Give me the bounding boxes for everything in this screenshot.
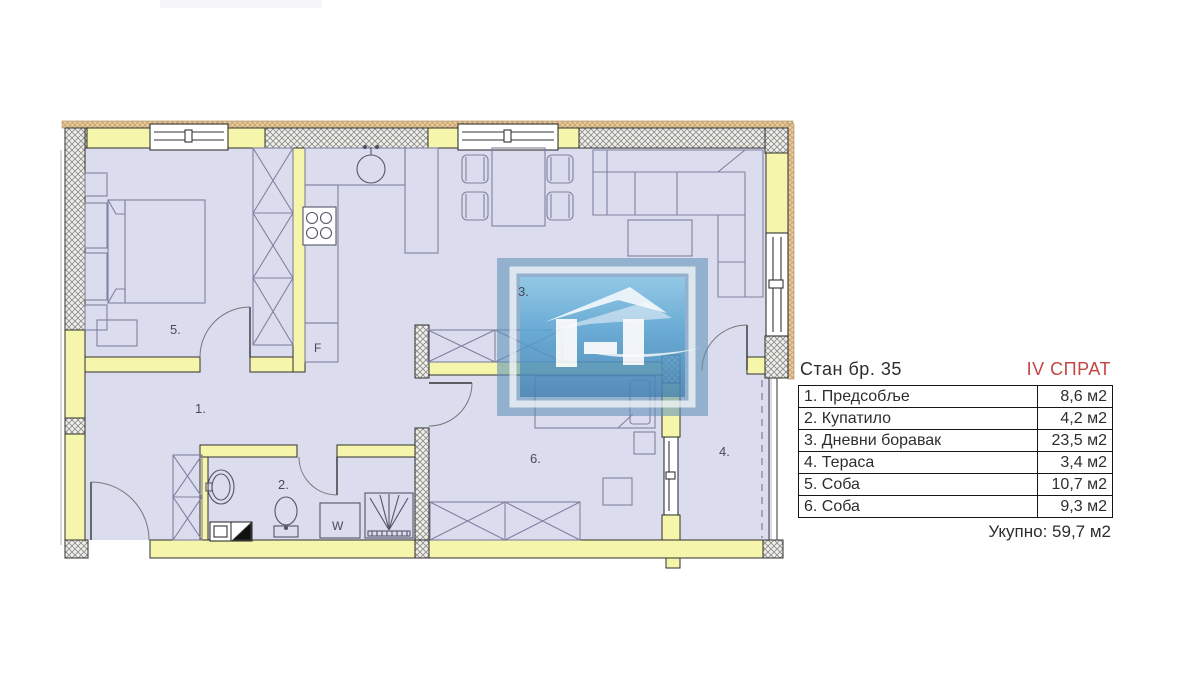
- areas-table: 1. Предсобље 8,6 м2 2. Купатило 4,2 м2 3…: [798, 385, 1113, 518]
- room-name: 6. Соба: [799, 496, 1038, 518]
- room-area: 3,4 м2: [1038, 452, 1113, 474]
- panel-header: Стан бр. 35 IV СПРАТ: [800, 359, 1111, 380]
- page: { "plan": { "labels": { "hall": "1.", "b…: [0, 0, 1200, 675]
- table-row: 3. Дневни боравак 23,5 м2: [799, 430, 1113, 452]
- room-name: 4. Тераса: [799, 452, 1038, 474]
- room-area: 23,5 м2: [1038, 430, 1113, 452]
- room-area: 4,2 м2: [1038, 408, 1113, 430]
- room-area: 8,6 м2: [1038, 386, 1113, 408]
- window-top-left: [150, 124, 228, 150]
- room-name: 2. Купатило: [799, 408, 1038, 430]
- floor-badge: IV СПРАТ: [1027, 359, 1111, 380]
- label-living: 3.: [518, 284, 529, 299]
- table-row: 6. Соба 9,3 м2: [799, 496, 1113, 518]
- room-name: 1. Предсобље: [799, 386, 1038, 408]
- room-area: 9,3 м2: [1038, 496, 1113, 518]
- label-terrace: 4.: [719, 444, 730, 459]
- apartment-info-panel: Стан бр. 35 IV СПРАТ 1. Предсобље 8,6 м2…: [798, 359, 1113, 542]
- label-bedroom6: 6.: [530, 451, 541, 466]
- stove: [303, 207, 336, 245]
- label-bath: 2.: [278, 477, 289, 492]
- room-area: 10,7 м2: [1038, 474, 1113, 496]
- label-hall: 1.: [195, 401, 206, 416]
- watermark-logo: [497, 258, 708, 416]
- apartment-title: Стан бр. 35: [800, 359, 902, 380]
- bath-cabinet: [210, 522, 252, 541]
- table-row: 5. Соба 10,7 м2: [799, 474, 1113, 496]
- room-name: 3. Дневни боравак: [799, 430, 1038, 452]
- table-row: 2. Купатило 4,2 м2: [799, 408, 1113, 430]
- window-right-wall: [766, 233, 788, 336]
- label-fridge: F: [314, 341, 321, 355]
- label-bedroom5: 5.: [170, 322, 181, 337]
- total-area: Укупно: 59,7 м2: [798, 522, 1113, 542]
- table-row: 4. Тераса 3,4 м2: [799, 452, 1113, 474]
- room-name: 5. Соба: [799, 474, 1038, 496]
- floor-plan: 1. 2. 3. 4. 5. 6. F W: [0, 0, 1200, 675]
- window-top-right: [458, 124, 558, 150]
- window-terrace-wall: [664, 437, 678, 515]
- table-row: 1. Предсобље 8,6 м2: [799, 386, 1113, 408]
- label-washer: W: [332, 519, 344, 533]
